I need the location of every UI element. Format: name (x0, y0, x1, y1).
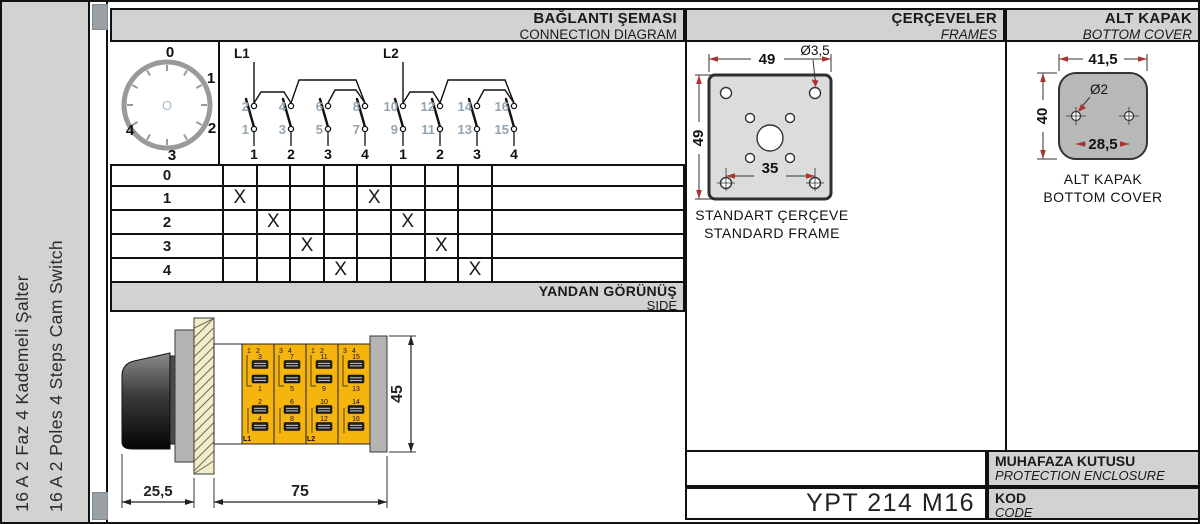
contact-open-cell (324, 186, 358, 210)
table-spacer-cell (492, 234, 684, 258)
svg-text:8: 8 (290, 416, 294, 423)
side-view-header: YANDAN GÖRÜNÜŞ SIDE (110, 281, 685, 312)
contact-open-cell (357, 234, 391, 258)
svg-text:1: 1 (258, 386, 262, 393)
switching-table: 01XX2XX3XX4XX (110, 164, 685, 283)
connection-title-en: CONNECTION DIAGRAM (118, 27, 677, 42)
svg-text:9: 9 (322, 386, 326, 393)
switching-table-body: 01XX2XX3XX4XX (111, 165, 684, 282)
cover-caption-tr: ALT KAPAK (1064, 171, 1143, 187)
connection-diagram-header: BAĞLANTI ŞEMASI CONNECTION DIAGRAM (110, 8, 685, 42)
svg-text:1: 1 (311, 348, 315, 355)
cover-dim-span: 28,5 (1088, 136, 1117, 153)
contact-open-cell (458, 165, 492, 186)
contact-open-cell (425, 186, 459, 210)
svg-text:2: 2 (258, 399, 262, 406)
frame-caption-tr: STANDART ÇERÇEVE (695, 207, 848, 223)
svg-text:3: 3 (473, 146, 481, 162)
frame-dim-holes: Ø3,5 (800, 43, 829, 58)
contact-open-cell (324, 234, 358, 258)
connection-diagram-drawing: L1 L2 2114326538741091121121413316154 (220, 42, 685, 164)
svg-text:13: 13 (352, 386, 360, 393)
svg-text:4: 4 (279, 99, 287, 114)
contact-open-cell (223, 258, 257, 282)
contact-open-cell (324, 210, 358, 234)
contact-closed-mark: X (357, 186, 391, 210)
svg-text:6: 6 (290, 399, 294, 406)
bottom-cover-header: ALT KAPAK BOTTOM COVER (1005, 8, 1200, 42)
contact-open-cell (391, 234, 425, 258)
svg-text:7: 7 (290, 354, 294, 361)
contact-open-cell (357, 258, 391, 282)
cover-caption-en: BOTTOM COVER (1043, 189, 1162, 205)
bottom-cover-title-en: BOTTOM COVER (1013, 27, 1192, 42)
contact-open-cell (391, 186, 425, 210)
frames-title-tr: ÇERÇEVELER (693, 11, 997, 27)
enclosure-label-cell: MUHAFAZA KUTUSU PROTECTION ENCLOSURE (987, 450, 1200, 487)
bottom-cover-drawing: 41,5 40 Ø2 28,5 ALT KAPAK BOTTOM COVER (1007, 42, 1200, 252)
contact-closed-mark: X (391, 210, 425, 234)
svg-text:3: 3 (279, 348, 283, 355)
table-row: 0 (111, 165, 684, 186)
feed-label-l1: L1 (234, 46, 250, 61)
contact-open-cell (290, 210, 324, 234)
position-label: 3 (111, 234, 223, 258)
contact-open-cell (290, 186, 324, 210)
svg-text:11: 11 (320, 354, 327, 361)
dim-body-height: 45 (389, 385, 406, 403)
contact-open-cell (290, 258, 324, 282)
code-title-en: CODE (995, 506, 1192, 520)
svg-text:16: 16 (352, 416, 360, 423)
contact-symbol: 432 (279, 99, 295, 162)
standard-frame-drawing: 49 49 Ø3,5 35 STANDART ÇERÇEVE STANDARD … (687, 42, 1005, 252)
table-spacer-cell (492, 165, 684, 186)
position-label: 1 (111, 186, 223, 210)
contact-open-cell (324, 165, 358, 186)
side-view-cell: 123124L1347568121191012L23415131416 (110, 312, 685, 520)
connection-diagram-cell: L1 L2 2114326538741091121121413316154 (220, 42, 685, 164)
contact-symbol: 211 (242, 99, 258, 162)
bottom-cover-title-tr: ALT KAPAK (1013, 11, 1192, 27)
contact-open-cell (290, 165, 324, 186)
svg-text:4: 4 (510, 146, 518, 162)
svg-text:1: 1 (247, 348, 251, 355)
feed-label-l2: L2 (383, 46, 399, 61)
frame-dim-width: 49 (759, 51, 776, 68)
contact-open-cell (257, 165, 291, 186)
wiring (254, 62, 514, 103)
cover-dim-width: 41,5 (1088, 51, 1117, 68)
contact-open-cell (425, 165, 459, 186)
contact-closed-mark: X (425, 234, 459, 258)
spine-square-top (92, 4, 108, 30)
svg-text:10: 10 (384, 99, 398, 114)
contact-closed-mark: X (458, 258, 492, 282)
cover-dim-hole: Ø2 (1090, 82, 1108, 97)
dial-pos-4: 4 (126, 122, 135, 139)
binding-spine (92, 2, 108, 522)
table-spacer-cell (492, 258, 684, 282)
svg-text:L1: L1 (243, 436, 251, 443)
svg-text:3: 3 (279, 122, 286, 137)
contact-open-cell (458, 210, 492, 234)
svg-text:3: 3 (343, 348, 347, 355)
svg-text:3: 3 (324, 146, 332, 162)
frame-dim-height: 49 (690, 130, 707, 147)
dim-body-length: 75 (291, 483, 309, 500)
spine-square-bottom (92, 492, 108, 520)
svg-text:L2: L2 (307, 436, 315, 443)
enclosure-value-cell (685, 450, 987, 487)
svg-text:4: 4 (361, 146, 369, 162)
dial-center-mark: O (162, 98, 172, 113)
side-title-tr: YANDAN GÖRÜNÜŞ (118, 284, 677, 299)
table-row: 4XX (111, 258, 684, 282)
svg-text:5: 5 (290, 386, 294, 393)
contact-open-cell (257, 258, 291, 282)
svg-text:2: 2 (436, 146, 444, 162)
position-label: 0 (111, 165, 223, 186)
svg-text:3: 3 (258, 354, 262, 361)
contact-symbol: 16154 (495, 99, 519, 162)
svg-text:2: 2 (287, 146, 295, 162)
svg-text:10: 10 (320, 399, 328, 406)
product-code: YPT 214 M16 (685, 487, 987, 520)
frames-header: ÇERÇEVELER FRAMES (685, 8, 1005, 42)
connection-title-tr: BAĞLANTI ŞEMASI (118, 11, 677, 27)
table-spacer-cell (492, 210, 684, 234)
contact-open-cell (257, 186, 291, 210)
contact-closed-mark: X (223, 186, 257, 210)
frame-dim-inner: 35 (762, 160, 779, 177)
side-view-drawing: 123124L1347568121191012L23415131416 (110, 312, 685, 520)
bottom-cover-panel: 41,5 40 Ø2 28,5 ALT KAPAK BOTTOM COVER (1005, 42, 1200, 450)
product-title-strip: 16 A 2 Faz 4 Kademeli Şalter 16 A 2 Pole… (2, 2, 90, 522)
table-spacer-cell (492, 186, 684, 210)
dial-cell: 0 1 2 3 4 O (110, 42, 220, 164)
table-row: 2XX (111, 210, 684, 234)
contact-symbol: 874 (353, 99, 369, 162)
enclosure-title-en: PROTECTION ENCLOSURE (995, 469, 1192, 483)
position-label: 4 (111, 258, 223, 282)
mounting-plate (175, 330, 194, 462)
cover-dim-height: 40 (1034, 108, 1051, 125)
panel-hatch (194, 318, 214, 474)
svg-text:6: 6 (316, 99, 323, 114)
svg-text:1: 1 (399, 146, 407, 162)
frames-title-en: FRAMES (693, 27, 997, 42)
product-title-turkish: 16 A 2 Faz 4 Kademeli Şalter (12, 275, 33, 512)
dial-pos-3: 3 (168, 147, 176, 164)
contact-open-cell (357, 210, 391, 234)
svg-text:9: 9 (391, 122, 398, 137)
contact-open-cell (223, 165, 257, 186)
svg-text:14: 14 (352, 399, 360, 406)
contact-symbol: 14133 (458, 99, 482, 162)
svg-text:8: 8 (353, 99, 360, 114)
end-plate (370, 336, 387, 452)
contact-open-cell (458, 234, 492, 258)
position-label: 2 (111, 210, 223, 234)
svg-text:14: 14 (458, 99, 473, 114)
svg-text:7: 7 (353, 122, 360, 137)
frames-panel: 49 49 Ø3,5 35 STANDART ÇERÇEVE STANDARD … (685, 42, 1005, 450)
svg-text:1: 1 (250, 146, 258, 162)
table-row: 3XX (111, 234, 684, 258)
contact-open-cell (223, 234, 257, 258)
contact-open-cell (223, 210, 257, 234)
code-label-cell: KOD CODE (987, 487, 1200, 520)
contact-symbol: 12112 (421, 99, 445, 162)
contact-closed-mark: X (290, 234, 324, 258)
contact-open-cell (391, 165, 425, 186)
svg-text:2: 2 (242, 99, 249, 114)
frame-caption-en: STANDARD FRAME (704, 225, 840, 241)
contact-open-cell (391, 258, 425, 282)
contact-symbol: 1091 (384, 99, 408, 162)
contact-open-cell (357, 165, 391, 186)
datasheet-page: 16 A 2 Faz 4 Kademeli Şalter 16 A 2 Pole… (0, 0, 1200, 524)
svg-text:15: 15 (495, 122, 509, 137)
dial-pos-1: 1 (207, 70, 215, 87)
svg-text:1: 1 (242, 122, 249, 137)
svg-text:12: 12 (320, 416, 328, 423)
svg-text:13: 13 (458, 122, 472, 137)
svg-text:11: 11 (421, 122, 435, 137)
contact-closed-mark: X (324, 258, 358, 282)
table-row: 1XX (111, 186, 684, 210)
product-title-english: 16 A 2 Poles 4 Steps Cam Switch (46, 240, 67, 512)
svg-text:4: 4 (258, 416, 262, 423)
svg-text:15: 15 (352, 354, 360, 361)
position-dial-drawing: 0 1 2 3 4 O (110, 42, 218, 164)
contact-open-cell (257, 234, 291, 258)
svg-text:16: 16 (495, 99, 509, 114)
svg-text:5: 5 (316, 122, 323, 137)
switch-knob (122, 353, 170, 449)
dial-pos-0: 0 (166, 44, 174, 61)
dim-knob-depth: 25,5 (143, 483, 172, 500)
code-title-tr: KOD (995, 491, 1192, 506)
svg-text:12: 12 (421, 99, 435, 114)
contact-open-cell (425, 210, 459, 234)
contact-open-cell (425, 258, 459, 282)
enclosure-title-tr: MUHAFAZA KUTUSU (995, 454, 1192, 469)
contacts-layer: 2114326538741091121121413316154 (242, 99, 518, 162)
side-title-en: SIDE (118, 299, 677, 313)
dial-pos-2: 2 (208, 120, 216, 137)
contact-closed-mark: X (257, 210, 291, 234)
contact-open-cell (458, 186, 492, 210)
contact-symbol: 653 (316, 99, 332, 162)
